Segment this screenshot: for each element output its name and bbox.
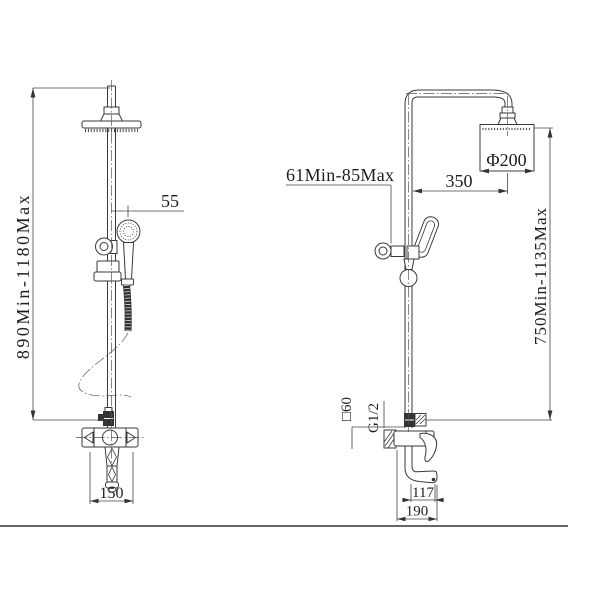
side-view bbox=[375, 90, 534, 483]
front-view bbox=[76, 80, 144, 492]
dimension-handshower-offset: 55 bbox=[111, 191, 184, 217]
front-mixer-valve bbox=[76, 428, 144, 447]
dim-label-thread-size: G1/2 bbox=[366, 403, 382, 433]
dimension-thread-size: G1/2 bbox=[366, 401, 384, 433]
dimension-head-diameter: Φ200 bbox=[480, 150, 534, 173]
side-diverter-valve bbox=[404, 413, 426, 427]
dim-label-handshower-offset: 55 bbox=[161, 191, 179, 211]
dim-label-body-square: □60 bbox=[339, 397, 355, 421]
dimension-spout-reach: 117 bbox=[402, 484, 444, 502]
dim-label-height-range: 890Min-1180Max bbox=[13, 193, 33, 359]
dimension-wall-distance: 61Min-85Max bbox=[286, 165, 394, 244]
dim-label-inlet-spacing: 150 bbox=[100, 485, 124, 502]
side-mixer-lever bbox=[420, 433, 437, 461]
technical-drawing-canvas: 890Min-1180Max 55 150 bbox=[0, 0, 600, 600]
dim-label-spout-overall: 190 bbox=[406, 504, 429, 520]
side-wall-bracket bbox=[375, 243, 404, 259]
dim-label-riser-range: 750Min-1135Max bbox=[531, 207, 550, 345]
dim-label-wall-distance: 61Min-85Max bbox=[286, 165, 394, 185]
dim-label-spout-reach: 117 bbox=[412, 485, 434, 501]
dim-label-head-diameter: Φ200 bbox=[486, 150, 526, 170]
dimension-arm-reach: 350 bbox=[413, 171, 508, 194]
dimension-height-range: 890Min-1180Max bbox=[13, 88, 110, 420]
front-shower-hose bbox=[79, 285, 131, 397]
dim-label-arm-reach: 350 bbox=[446, 171, 473, 191]
